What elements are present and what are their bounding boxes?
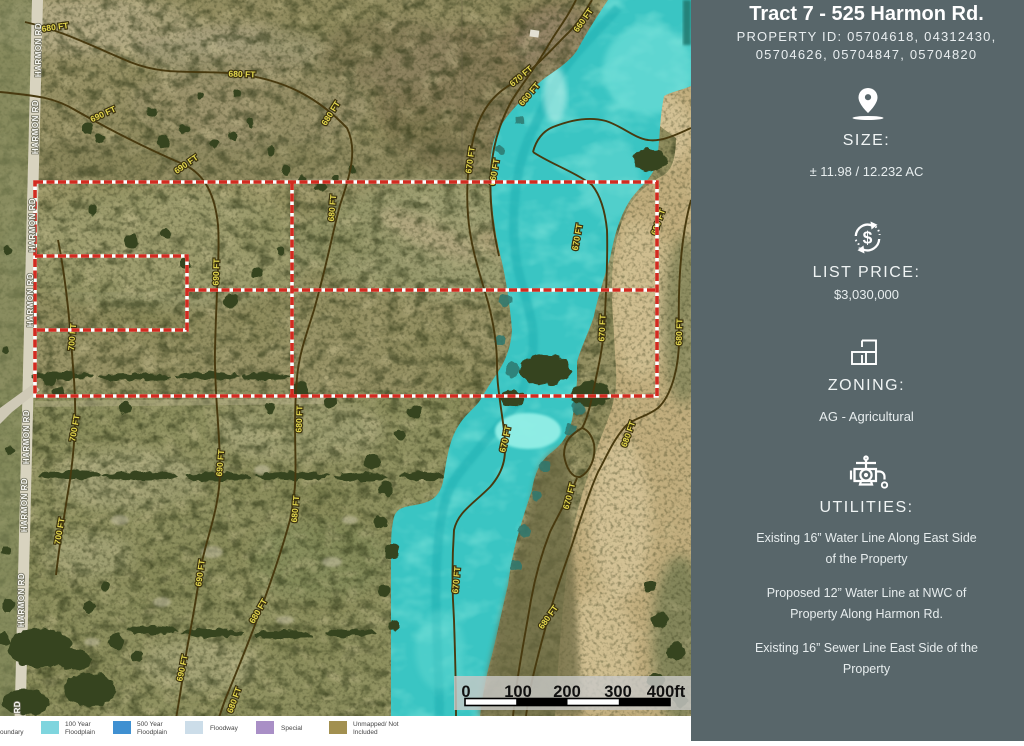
svg-text:HARMON RD: HARMON RD	[26, 273, 35, 327]
svg-text:HARMON RD: HARMON RD	[20, 478, 29, 532]
svg-text:$: $	[863, 228, 873, 248]
svg-text:680 FT: 680 FT	[228, 69, 256, 80]
svg-text:HARMON RD: HARMON RD	[34, 23, 43, 77]
svg-text:HARMON RD: HARMON RD	[17, 573, 26, 627]
svg-text:HARMON RD: HARMON RD	[31, 100, 40, 154]
svg-text:680 FT: 680 FT	[294, 405, 305, 433]
svg-text:HARMON RD: HARMON RD	[22, 410, 31, 464]
svg-text:690 FT: 690 FT	[211, 258, 222, 286]
svg-text:680 FT: 680 FT	[674, 318, 685, 346]
svg-text:670 FT: 670 FT	[596, 313, 607, 341]
svg-text:HARMON RD: HARMON RD	[28, 198, 37, 252]
